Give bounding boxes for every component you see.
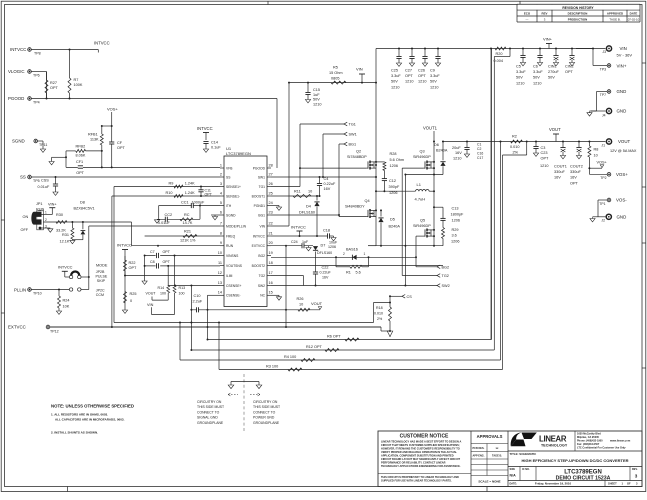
svg-text:R20: R20	[496, 52, 503, 56]
svg-text:ILIM: ILIM	[226, 274, 233, 278]
svg-text:VOUT: VOUT	[146, 291, 157, 295]
svg-text:Si7848BDP: Si7848BDP	[347, 155, 367, 159]
svg-text:SiR496DP: SiR496DP	[413, 155, 431, 159]
svg-text:DFLS160: DFLS160	[299, 211, 315, 215]
svg-text:REV: REV	[542, 12, 548, 16]
svg-text:17: 17	[269, 271, 273, 275]
svg-text:OPT: OPT	[405, 74, 413, 78]
svg-text:NOTE: UNLESS OTHERWISE SPECIFI: NOTE: UNLESS OTHERWISE SPECIFIED	[51, 404, 134, 409]
svg-text:APPROVALS: APPROVALS	[477, 434, 503, 439]
svg-text:12V @ 5A MAX: 12V @ 5A MAX	[610, 149, 637, 153]
svg-text:BOOST1: BOOST1	[252, 194, 266, 198]
svg-text:OPT: OPT	[570, 181, 578, 185]
svg-text:SENSE1-: SENSE1-	[226, 194, 240, 198]
svg-text:R13: R13	[179, 286, 186, 290]
svg-text:C4: C4	[324, 177, 329, 181]
svg-text:SUPPLIED FOR USE WITH LINEAR T: SUPPLIED FOR USE WITH LINEAR TECHNOLOGY …	[381, 478, 452, 482]
svg-text:R22: R22	[129, 261, 136, 265]
svg-text:1630 McCarthy Blvd: 1630 McCarthy Blvd	[577, 432, 601, 435]
svg-text:APPROVED: APPROVED	[607, 12, 623, 16]
svg-text:20: 20	[269, 241, 273, 245]
svg-text:R27: R27	[50, 81, 57, 85]
svg-text:R7: R7	[74, 78, 79, 82]
svg-text:R26: R26	[297, 297, 304, 301]
svg-text:1: 1	[364, 252, 366, 256]
svg-text:C23: C23	[541, 151, 548, 155]
svg-text:C9: C9	[430, 69, 435, 73]
svg-text:1206: 1206	[452, 219, 460, 223]
svg-text:INTVCC: INTVCC	[94, 41, 110, 46]
svg-text:C17: C17	[477, 156, 483, 160]
svg-text:VERIFY PROPER AND RELIABLE OPE: VERIFY PROPER AND RELIABLE OPERATION IN …	[381, 450, 457, 454]
svg-text:3.3uF: 3.3uF	[430, 74, 440, 78]
svg-text:www.linear.com: www.linear.com	[609, 439, 631, 443]
svg-text:C18: C18	[323, 228, 330, 232]
svg-text:INTVCC: INTVCC	[197, 126, 213, 131]
svg-text:CIN1: CIN1	[548, 65, 557, 69]
svg-text:R3 100: R3 100	[266, 364, 278, 368]
svg-text:JP2B: JP2B	[96, 270, 105, 274]
svg-text:100: 100	[160, 291, 166, 295]
svg-text:SGND: SGND	[12, 139, 25, 144]
svg-text:R12 OPT: R12 OPT	[306, 345, 323, 349]
svg-text:OPT: OPT	[565, 70, 573, 74]
svg-text:VOUT: VOUT	[311, 301, 323, 306]
svg-text:SW1: SW1	[349, 133, 357, 137]
svg-text:C16: C16	[477, 151, 483, 155]
svg-text:15 Ohm: 15 Ohm	[329, 71, 343, 75]
svg-text:9: 9	[220, 241, 222, 245]
svg-text:C24: C24	[291, 240, 298, 244]
svg-text:OPT: OPT	[76, 171, 84, 175]
svg-text:1800pF: 1800pF	[451, 213, 465, 217]
svg-text:CS: CS	[407, 295, 413, 299]
svg-text:5: 5	[220, 201, 222, 205]
svg-text:24: 24	[269, 201, 273, 205]
svg-text:TP5: TP5	[33, 179, 40, 183]
svg-text:CF: CF	[117, 141, 123, 145]
svg-text:12.1K: 12.1K	[60, 239, 70, 243]
svg-text:SW1: SW1	[258, 175, 265, 179]
svg-text:OPT: OPT	[205, 193, 213, 197]
svg-text:50V: 50V	[391, 80, 398, 84]
svg-text:SENSE1+: SENSE1+	[226, 185, 241, 189]
svg-text:C1: C1	[477, 142, 481, 146]
svg-text:16V: 16V	[455, 151, 462, 155]
svg-text:TP1: TP1	[599, 202, 605, 206]
svg-text:LTC3789EGN: LTC3789EGN	[226, 151, 251, 156]
svg-text:50V: 50V	[533, 76, 540, 80]
svg-text:VIN+: VIN+	[617, 63, 627, 68]
svg-text:TG2: TG2	[442, 274, 449, 278]
svg-text:CONNECT TO: CONNECT TO	[197, 410, 220, 414]
svg-text:VOUT: VOUT	[618, 139, 631, 144]
svg-text:16: 16	[269, 281, 273, 285]
svg-text:RUN: RUN	[226, 244, 234, 248]
svg-text:GND: GND	[617, 214, 627, 219]
svg-text:D7: D7	[321, 244, 326, 248]
svg-text:CIN2: CIN2	[565, 65, 574, 69]
svg-text:0.22uF: 0.22uF	[320, 271, 332, 275]
svg-text:1: 1	[45, 211, 47, 215]
svg-text:2: 2	[220, 172, 222, 176]
svg-text:R14: R14	[158, 286, 165, 290]
svg-text:0.01uF: 0.01uF	[158, 221, 171, 225]
svg-text:13: 13	[218, 281, 222, 285]
svg-text:113K: 113K	[90, 138, 99, 142]
svg-text:3.3uF: 3.3uF	[533, 70, 543, 74]
svg-text:INTVCC: INTVCC	[10, 47, 26, 52]
svg-text:ALL CAPACITORS ARE IN MICROFAR: ALL CAPACITORS ARE IN MICROFARADS, 0603.	[55, 418, 125, 422]
svg-text:R8: R8	[594, 148, 599, 152]
svg-text:15: 15	[269, 291, 273, 295]
svg-text:VOUTSNS: VOUTSNS	[226, 264, 243, 268]
svg-text:VIN+: VIN+	[543, 36, 553, 41]
svg-text:J4: J4	[602, 114, 606, 118]
svg-text:PULSE: PULSE	[96, 274, 108, 278]
svg-text:Q2: Q2	[356, 150, 361, 154]
svg-text:HOWEVER, IT REMAINS THE CUSTOM: HOWEVER, IT REMAINS THE CUSTOMER'S RESPO…	[381, 446, 460, 450]
svg-text:OF: OF	[627, 482, 631, 486]
svg-text:BG2: BG2	[442, 265, 450, 269]
svg-text:27: 27	[269, 172, 273, 176]
svg-text:1000pF: 1000pF	[192, 201, 206, 205]
svg-text:0.010: 0.010	[510, 145, 520, 149]
svg-text:SGND: SGND	[226, 213, 236, 217]
svg-text:CSENSE+: CSENSE+	[226, 284, 242, 288]
svg-text:1206: 1206	[451, 240, 459, 244]
svg-text:PERFORMANCE OR RELIABILITY. C: PERFORMANCE OR RELIABILITY. CONTACT LINE…	[381, 460, 446, 464]
svg-text:16V: 16V	[554, 176, 561, 180]
svg-text:50V: 50V	[313, 98, 320, 102]
svg-text:C8: C8	[150, 260, 155, 264]
svg-text:5V - 36V: 5V - 36V	[617, 53, 633, 58]
svg-text:1210: 1210	[391, 85, 399, 89]
svg-text:J3: J3	[602, 50, 606, 54]
svg-text:OPT: OPT	[129, 266, 137, 270]
svg-text:CSENSE-: CSENSE-	[226, 294, 241, 298]
svg-text:TAGE B.: TAGE B.	[609, 17, 620, 21]
svg-text:THIS CIRCUIT IS PROPRIETARY TO: THIS CIRCUIT IS PROPRIETARY TO LINEAR TE…	[381, 475, 459, 479]
svg-text:TP10: TP10	[33, 291, 42, 295]
svg-text:07-02-10: 07-02-10	[628, 17, 640, 21]
svg-text:SCALE = NONE: SCALE = NONE	[478, 480, 500, 484]
svg-text:33.2K: 33.2K	[56, 229, 66, 233]
svg-text:OPT: OPT	[163, 260, 171, 264]
svg-text:R2: R2	[512, 135, 517, 139]
svg-text:R31: R31	[62, 233, 69, 237]
svg-text:C14: C14	[211, 141, 218, 145]
svg-text:CCM: CCM	[96, 293, 104, 297]
svg-text:FREQ: FREQ	[226, 234, 236, 238]
svg-text:HIGH EFFICIENCY STEP-UP/DOWN D: HIGH EFFICIENCY STEP-UP/DOWN DC/DC CONVE…	[521, 458, 628, 463]
svg-text:Fax: (408)434-0507: Fax: (408)434-0507	[577, 443, 600, 446]
svg-text:Q3: Q3	[420, 149, 425, 153]
svg-text:5.6 Ohm: 5.6 Ohm	[390, 158, 405, 162]
svg-text:R30: R30	[56, 213, 63, 217]
svg-text:D5: D5	[390, 218, 395, 222]
svg-text:16V: 16V	[322, 276, 329, 280]
svg-text:TG2: TG2	[259, 274, 266, 278]
svg-text:MODE: MODE	[96, 264, 108, 268]
svg-text:DFLS160: DFLS160	[317, 251, 332, 255]
svg-text:TP8: TP8	[34, 52, 41, 56]
svg-text:4: 4	[220, 191, 222, 195]
svg-text:1210: 1210	[430, 85, 438, 89]
svg-text:C2: C2	[477, 147, 481, 151]
svg-text:3.3uF: 3.3uF	[391, 74, 401, 78]
svg-text:VOS-: VOS-	[616, 198, 627, 203]
svg-text:D4: D4	[306, 205, 311, 209]
svg-text:330uF: 330uF	[570, 170, 581, 174]
svg-text:COUT1: COUT1	[554, 165, 567, 169]
svg-text:1210: 1210	[540, 164, 548, 168]
svg-text:21: 21	[269, 231, 273, 235]
svg-text:TECHNOLOGY APPLICATIONS ENGINE: TECHNOLOGY APPLICATIONS ENGINEERING FOR …	[381, 464, 461, 468]
svg-text:3: 3	[220, 182, 222, 186]
svg-text:R4 100: R4 100	[284, 355, 296, 359]
svg-text:330uF: 330uF	[554, 170, 565, 174]
svg-text:10: 10	[218, 251, 222, 255]
svg-text:CIRCUITRY ON: CIRCUITRY ON	[197, 400, 222, 404]
svg-text:PLLIN: PLLIN	[14, 287, 26, 292]
svg-text:ITH: ITH	[226, 204, 232, 208]
svg-text:28: 28	[269, 163, 273, 167]
svg-text:22: 22	[269, 221, 273, 225]
svg-text:PGOOD: PGOOD	[253, 166, 266, 170]
svg-text:1210: 1210	[453, 156, 461, 160]
svg-text:C26: C26	[418, 69, 425, 73]
svg-text:BZX84C5V1: BZX84C5V1	[74, 206, 95, 210]
svg-text:Si4840BDY: Si4840BDY	[345, 205, 365, 209]
svg-text:100K: 100K	[74, 83, 83, 87]
svg-text:J1: J1	[601, 144, 605, 148]
svg-text:DATE:: DATE:	[510, 483, 518, 486]
svg-text:CF1: CF1	[76, 160, 83, 164]
svg-text:PRODUCTION: PRODUCTION	[568, 17, 587, 21]
svg-text:GND: GND	[617, 109, 627, 114]
svg-text:3: 3	[635, 474, 638, 479]
svg-text:OPT: OPT	[541, 156, 549, 160]
svg-text:NC: NC	[260, 294, 265, 298]
svg-text:TP4: TP4	[33, 101, 40, 105]
svg-text:23: 23	[269, 210, 273, 214]
svg-text:VLOGIC: VLOGIC	[8, 69, 25, 74]
svg-text:LINEAR TECHNOLOGY HAS MADE A B: LINEAR TECHNOLOGY HAS MADE A BEST EFFORT…	[381, 439, 461, 443]
svg-text:DATE: DATE	[630, 12, 638, 16]
svg-text:16V: 16V	[324, 187, 331, 191]
svg-text:INTVCC: INTVCC	[253, 234, 266, 238]
svg-text:R6 OPT: R6 OPT	[327, 334, 341, 338]
svg-text:1uF: 1uF	[302, 240, 309, 244]
svg-text:1210: 1210	[418, 80, 426, 84]
svg-text:B240A: B240A	[436, 149, 448, 153]
svg-text:8.06K: 8.06K	[76, 154, 86, 158]
svg-text:CUSTOMER NOTICE: CUSTOMER NOTICE	[400, 434, 449, 440]
svg-text:SiR496DP: SiR496DP	[413, 224, 431, 228]
svg-text:50V: 50V	[516, 76, 523, 80]
svg-text:R11: R11	[294, 189, 301, 193]
svg-text:1206: 1206	[390, 164, 398, 168]
svg-text:CC2: CC2	[165, 213, 173, 217]
svg-text:10uF: 10uF	[329, 240, 338, 244]
svg-text:TP12: TP12	[50, 330, 59, 334]
svg-text:APP ENG.: APP ENG.	[473, 455, 485, 458]
svg-text:DESCRIPTION: DESCRIPTION	[568, 12, 588, 16]
svg-text:EXTVCC: EXTVCC	[252, 244, 266, 248]
svg-text:R10: R10	[166, 191, 173, 195]
svg-text:C27: C27	[405, 69, 412, 73]
svg-text:BAS16: BAS16	[346, 248, 358, 252]
svg-text:VIN: VIN	[147, 303, 154, 307]
svg-text:VOUT1: VOUT1	[423, 126, 438, 131]
svg-text:CIRCUIT THAT MEETS CUSTOMER-SU: CIRCUIT THAT MEETS CUSTOMER-SUPPLIED SPE…	[381, 443, 460, 447]
svg-text:SW2: SW2	[258, 284, 265, 288]
svg-text:50V: 50V	[548, 76, 555, 80]
svg-text:C7: C7	[150, 250, 155, 254]
svg-text:EXTVCC: EXTVCC	[8, 325, 26, 330]
svg-text:VOS+: VOS+	[107, 107, 118, 112]
svg-text:L1: L1	[417, 182, 422, 187]
svg-text:1.24K: 1.24K	[185, 181, 195, 185]
svg-text:TP7: TP7	[600, 93, 606, 97]
svg-text:2%: 2%	[513, 150, 519, 154]
svg-text:TITLE: SCHEMATIC: TITLE: SCHEMATIC	[510, 452, 538, 456]
svg-text:2.2uF: 2.2uF	[193, 300, 203, 304]
svg-text:GROUNDPLANE: GROUNDPLANE	[253, 421, 280, 425]
svg-text:0.22uF: 0.22uF	[324, 182, 337, 186]
svg-text:SW2: SW2	[442, 284, 450, 288]
svg-text:ON: ON	[23, 215, 29, 219]
svg-text:TG1: TG1	[259, 185, 266, 189]
svg-text:VINSNS: VINSNS	[226, 254, 239, 258]
svg-text:26: 26	[269, 182, 273, 186]
svg-text:1210: 1210	[516, 81, 524, 85]
svg-text:8: 8	[220, 231, 222, 235]
svg-text:SKIP: SKIP	[97, 279, 106, 283]
svg-text:7: 7	[220, 221, 222, 225]
svg-text:25: 25	[269, 191, 273, 195]
svg-text:D6: D6	[434, 143, 439, 147]
svg-text:10: 10	[299, 303, 303, 307]
svg-text:3.3uF: 3.3uF	[516, 70, 526, 74]
svg-text:VIN+: VIN+	[48, 203, 57, 207]
svg-text:1.24K: 1.24K	[185, 191, 195, 195]
svg-text:5.6: 5.6	[356, 271, 361, 275]
svg-text:LINEAR: LINEAR	[539, 435, 567, 444]
svg-text:6: 6	[220, 210, 222, 214]
svg-text:ECO: ECO	[524, 12, 531, 16]
svg-text:VOUT: VOUT	[549, 127, 561, 132]
svg-text:THIS SIDE MUST: THIS SIDE MUST	[197, 405, 224, 409]
svg-text:TECHNOLOGY: TECHNOLOGY	[541, 443, 568, 447]
svg-text:OPT: OPT	[50, 86, 58, 90]
svg-text:C10: C10	[194, 294, 201, 298]
svg-text:CONNECT TO: CONNECT TO	[253, 410, 276, 414]
svg-text:MODE/PLLIN: MODE/PLLIN	[226, 224, 247, 228]
svg-text:OFF: OFF	[21, 228, 29, 232]
svg-text:10K: 10K	[63, 304, 70, 308]
svg-text:1206: 1206	[328, 245, 336, 249]
svg-text:Milpitas, CA 95035: Milpitas, CA 95035	[577, 436, 599, 439]
svg-text:SHEET: SHEET	[608, 482, 617, 486]
svg-text:VIN: VIN	[356, 67, 363, 72]
svg-text:2: 2	[45, 218, 47, 222]
svg-text:C13: C13	[452, 207, 459, 211]
svg-text:1: 1	[220, 163, 222, 167]
svg-text:2. INSTALL SHUNTS AS SHOWN.: 2. INSTALL SHUNTS AS SHOWN.	[51, 431, 98, 435]
svg-text:INTVCC: INTVCC	[291, 225, 306, 230]
svg-text:100: 100	[179, 291, 185, 295]
svg-text:12: 12	[218, 271, 222, 275]
svg-text:R21: R21	[184, 229, 191, 233]
svg-text:R18: R18	[376, 306, 383, 310]
svg-text:1210: 1210	[533, 81, 541, 85]
svg-text:Q5: Q5	[420, 219, 425, 223]
svg-text:GROUNDPLANE: GROUNDPLANE	[197, 421, 224, 425]
svg-text:TG1: TG1	[349, 123, 356, 127]
svg-text:18: 18	[269, 261, 273, 265]
svg-text:PGOOD: PGOOD	[8, 96, 24, 101]
svg-text:0.01uF: 0.01uF	[38, 185, 51, 189]
svg-text:IC NO.: IC NO.	[522, 468, 530, 471]
svg-text:390pF: 390pF	[389, 185, 400, 189]
svg-text:R5: R5	[333, 66, 338, 70]
svg-text:RFB1: RFB1	[88, 133, 98, 137]
svg-text:SS: SS	[20, 175, 26, 180]
svg-text:1. ALL RESISTORS ARE IN OHMS,: 1. ALL RESISTORS ARE IN OHMS, 0603.	[51, 413, 108, 417]
svg-text:JP2C: JP2C	[96, 288, 105, 292]
svg-text:BG1: BG1	[349, 143, 357, 147]
svg-text:LTC Confidential-For Customer: LTC Confidential-For Customer Use Only	[577, 447, 626, 450]
svg-text:INTVCC: INTVCC	[58, 264, 73, 269]
svg-text:POWER GND: POWER GND	[253, 416, 275, 420]
svg-text:3.6: 3.6	[452, 234, 457, 238]
svg-text:R29: R29	[452, 228, 459, 232]
svg-text:C22: C22	[322, 266, 329, 270]
svg-text:JP1: JP1	[36, 202, 43, 206]
svg-text:C25: C25	[391, 69, 398, 73]
svg-text:RC: RC	[184, 213, 190, 217]
svg-text:C12: C12	[389, 179, 396, 183]
svg-text:PCB DES.: PCB DES.	[473, 447, 485, 450]
svg-text:0.004: 0.004	[494, 59, 504, 63]
svg-text:B240A: B240A	[389, 224, 401, 228]
svg-text:270uF: 270uF	[548, 70, 559, 74]
svg-text:1210: 1210	[313, 102, 321, 106]
svg-text:20uF: 20uF	[452, 146, 461, 150]
svg-text:2: 2	[343, 252, 345, 256]
svg-text:TAGE B.: TAGE B.	[492, 455, 502, 458]
svg-text:SIGNAL GND: SIGNAL GND	[197, 416, 218, 420]
svg-text:R1: R1	[346, 271, 351, 275]
svg-text:CIRCUITRY ON: CIRCUITRY ON	[253, 400, 278, 404]
svg-text:N/A: N/A	[510, 474, 517, 478]
svg-text:CSS: CSS	[41, 179, 49, 183]
svg-text:BOOST2: BOOST2	[252, 264, 266, 268]
svg-text:14.7K: 14.7K	[183, 221, 193, 225]
svg-text:VOS+: VOS+	[616, 172, 628, 177]
svg-text:TP6: TP6	[33, 74, 40, 78]
svg-text:0: 0	[130, 299, 132, 303]
svg-text:TP2: TP2	[600, 176, 606, 180]
svg-text:TP3: TP3	[600, 67, 606, 71]
svg-text:INTVCC: INTVCC	[117, 243, 132, 248]
svg-text:RFB2: RFB2	[76, 145, 86, 149]
svg-text:CIRCUIT BOARD LAYOUT MAY SIGNI: CIRCUIT BOARD LAYOUT MAY SIGNIFICANTLY A…	[381, 457, 460, 461]
svg-text:C15: C15	[313, 88, 320, 92]
svg-text:GND: GND	[617, 89, 627, 94]
